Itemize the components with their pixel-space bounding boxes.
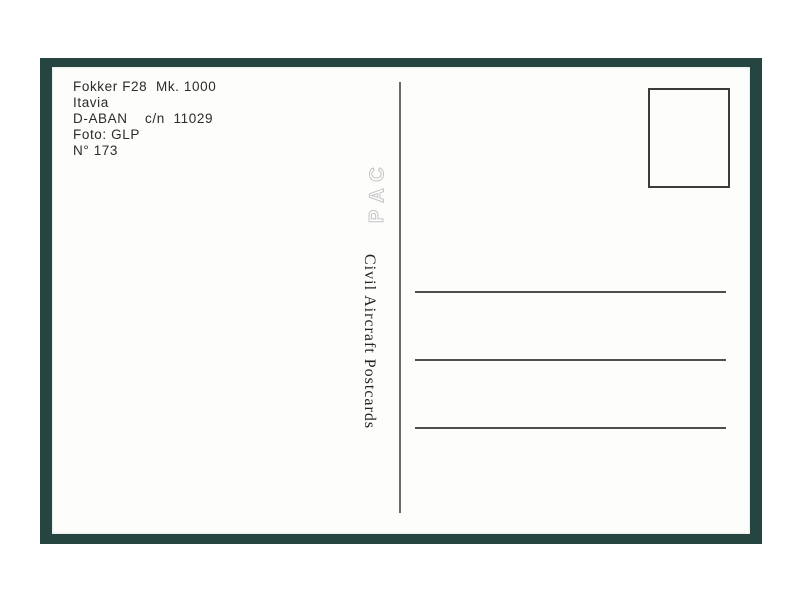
caption-line-card-number: N° 173 [73,143,216,159]
green-backdrop-mat: Fokker F28 Mk. 1000 Itavia D-ABAN c/n 11… [40,58,762,544]
center-divider-rule [399,82,401,513]
address-line [415,359,726,361]
cap-monogram: C A P [364,164,392,227]
scanned-postcard-photo: Fokker F28 Mk. 1000 Itavia D-ABAN c/n 11… [0,0,800,600]
address-line [415,427,726,429]
caption-line-aircraft: Fokker F28 Mk. 1000 [73,79,216,95]
stamp-box [648,88,730,188]
caption-line-airline: Itavia [73,95,216,111]
publisher-name-vertical: Civil Aircraft Postcards [360,254,378,434]
address-line [415,291,726,293]
caption-block: Fokker F28 Mk. 1000 Itavia D-ABAN c/n 11… [73,79,216,159]
monogram-letter-c: C [367,167,388,181]
caption-line-registration: D-ABAN c/n 11029 [73,111,216,127]
monogram-letter-p: P [368,210,389,223]
caption-line-photo-credit: Foto: GLP [73,127,216,143]
monogram-letter-a: A [367,188,388,202]
postcard-back: Fokker F28 Mk. 1000 Itavia D-ABAN c/n 11… [52,67,750,534]
